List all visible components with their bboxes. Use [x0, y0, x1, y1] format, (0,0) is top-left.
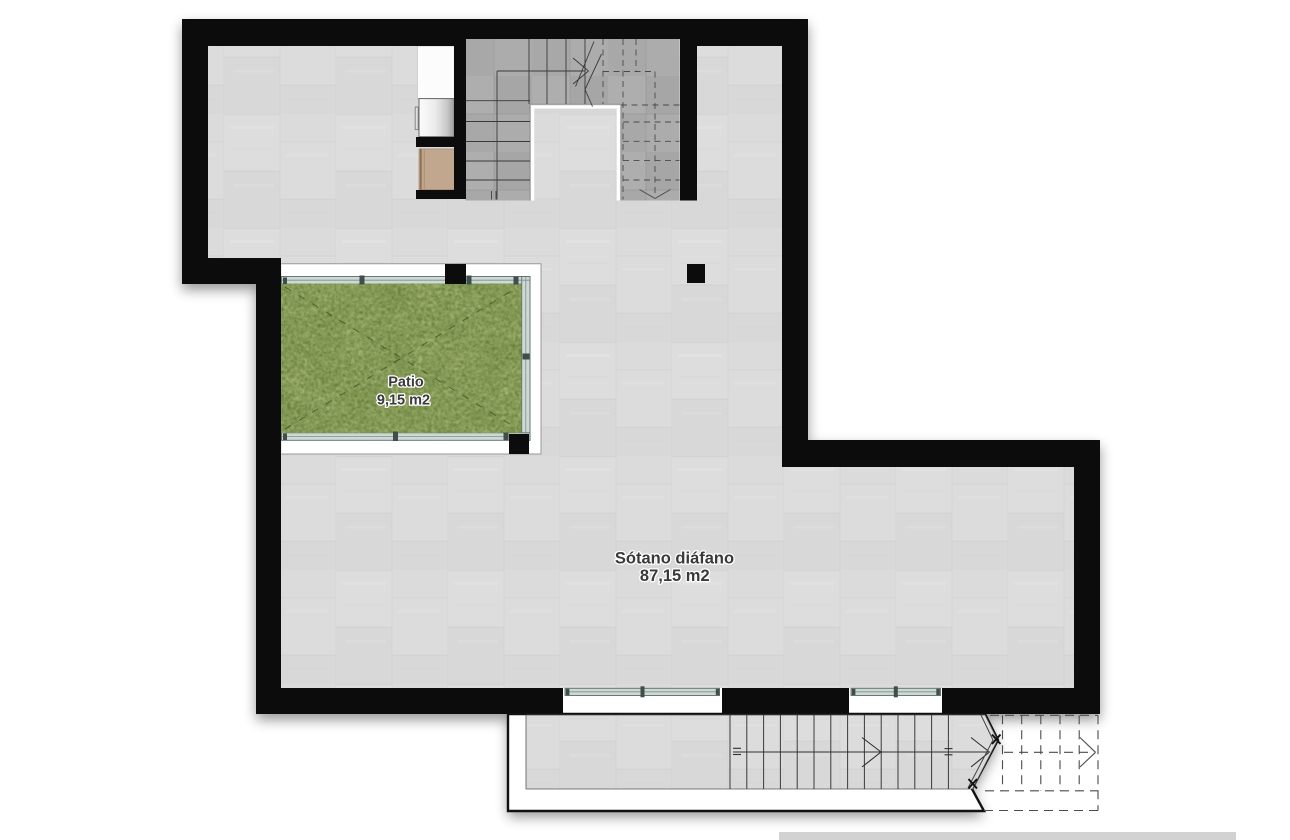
svg-text:9,15 m2: 9,15 m2	[377, 393, 430, 409]
svg-text:87,15 m2: 87,15 m2	[640, 567, 710, 585]
svg-text:Sótano diáfano: Sótano diáfano	[615, 550, 734, 568]
svg-text:Patio: Patio	[388, 375, 424, 391]
